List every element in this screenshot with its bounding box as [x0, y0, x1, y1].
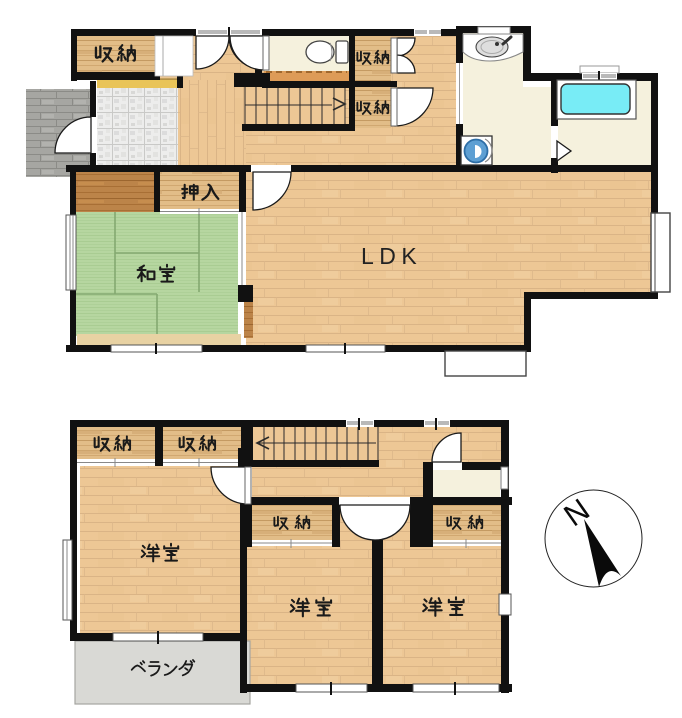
svg-text:LDK: LDK [361, 243, 422, 269]
